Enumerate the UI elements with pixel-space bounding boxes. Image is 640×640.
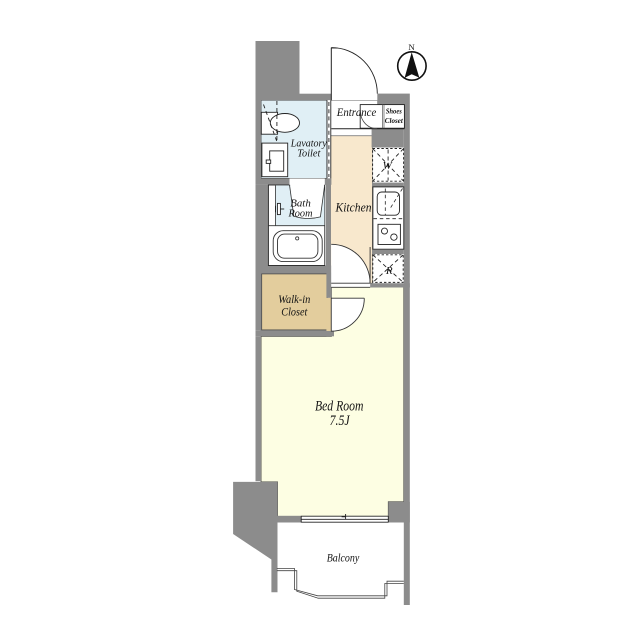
svg-text:N: N [408, 42, 415, 52]
svg-text:Walk-in: Walk-in [278, 294, 310, 306]
svg-text:Entrance: Entrance [336, 105, 377, 119]
svg-text:Shoes: Shoes [386, 107, 402, 116]
svg-text:R: R [385, 265, 393, 277]
svg-text:7.5J: 7.5J [330, 413, 350, 429]
svg-text:Balcony: Balcony [327, 553, 360, 565]
svg-text:Closet: Closet [281, 307, 308, 319]
svg-text:Kitchen: Kitchen [335, 200, 372, 215]
svg-text:W: W [383, 160, 393, 172]
svg-text:Toilet: Toilet [297, 148, 321, 160]
svg-text:Room: Room [288, 208, 313, 219]
svg-text:Closet: Closet [385, 116, 404, 125]
